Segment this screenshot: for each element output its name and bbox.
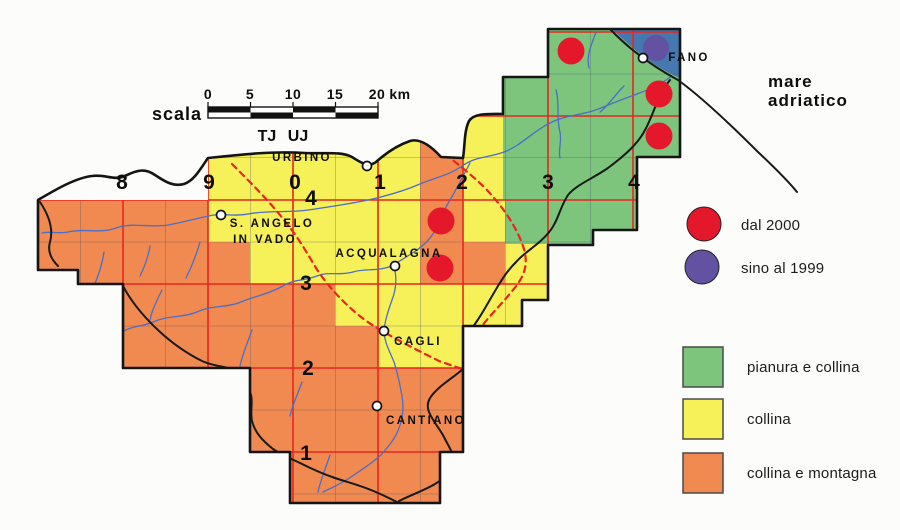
grid-number: 0 (289, 171, 301, 194)
town-marker-cagli (380, 327, 389, 336)
scale-bar: scala 0 5 10 15 20 km (152, 86, 411, 124)
region-orange (78, 270, 250, 284)
scale-ticks (208, 102, 378, 107)
zone-label-tj: TJ (258, 128, 277, 145)
town-label-cagli: CAGLI (394, 336, 442, 348)
region-yellow (463, 200, 505, 242)
grid-number: 2 (302, 357, 314, 380)
town-marker-fano (639, 54, 648, 63)
grid-number: 4 (628, 171, 640, 194)
scale-tick-label: 10 (285, 86, 302, 102)
legend-swatch-pianura (683, 347, 723, 387)
legend-label-montagna: collina e montagna (747, 465, 877, 482)
legend-label-collina: collina (747, 411, 791, 428)
town-label-urbino: URBINO (272, 152, 332, 164)
map-figure: URBINO S. ANGELO IN VADO ACQUALAGNA CAGL… (0, 0, 900, 530)
legend-label-dal-2000: dal 2000 (741, 217, 800, 234)
scale-tick-label: 15 (327, 86, 344, 102)
sighting-dot-red (646, 123, 673, 150)
grid-number: 3 (542, 171, 554, 194)
legend-areas: pianura e collina collina collina e mont… (683, 347, 877, 493)
grid-number: 8 (116, 171, 128, 194)
town-label-sangelo-line2: IN VADO (233, 234, 297, 246)
town-marker-urbino (363, 162, 372, 171)
map-canvas: URBINO S. ANGELO IN VADO ACQUALAGNA CAGL… (0, 0, 900, 530)
scale-tick-label: 20 (369, 86, 386, 102)
grid-number: 4 (305, 187, 317, 210)
grid-number: 3 (300, 272, 312, 295)
scale-tick-label: 0 (204, 86, 212, 102)
scale-bar-segment (208, 107, 251, 113)
sighting-dot-red (646, 81, 673, 108)
grid-number: 1 (374, 171, 386, 194)
sea-label-line2: adriatico (768, 91, 848, 110)
legend-swatch-montagna (683, 453, 723, 493)
town-marker-cantiano (373, 402, 382, 411)
legend-dot-dal-2000 (687, 207, 721, 241)
grid-number: 2 (456, 171, 468, 194)
scale-bar-segment (336, 113, 379, 119)
town-marker-sangelo (217, 211, 226, 220)
grid-number: 1 (300, 442, 312, 465)
town-label-fano: FANO (668, 52, 710, 64)
region-yellow (505, 244, 548, 287)
sighting-dot-red (428, 208, 455, 235)
town-marker-acqualagna (391, 262, 400, 271)
sea-label-line1: mare (768, 72, 813, 91)
altitude-zone-mosaic (38, 29, 680, 503)
scale-bar-segment (293, 107, 336, 113)
town-label-acqualagna: ACQUALAGNA (335, 248, 442, 260)
sighting-dot-red (558, 38, 585, 65)
region-orange (290, 452, 440, 503)
town-label-cantiano: CANTIANO (386, 415, 466, 427)
grid-number: 9 (203, 171, 215, 194)
scale-bar-segment (251, 113, 294, 119)
legend-swatch-collina (683, 399, 723, 439)
town-label-sangelo-line1: S. ANGELO (230, 218, 314, 230)
zone-label-uj: UJ (288, 128, 308, 145)
legend-dot-sino-1999 (685, 250, 719, 284)
legend-label-sino-1999: sino al 1999 (741, 260, 824, 277)
scale-tick-label: 5 (246, 86, 254, 102)
legend-label-pianura: pianura e collina (747, 359, 860, 376)
scale-label: scala (152, 104, 202, 124)
legend-markers: dal 2000 sino al 1999 (685, 207, 824, 284)
scale-unit-label: km (389, 86, 410, 102)
